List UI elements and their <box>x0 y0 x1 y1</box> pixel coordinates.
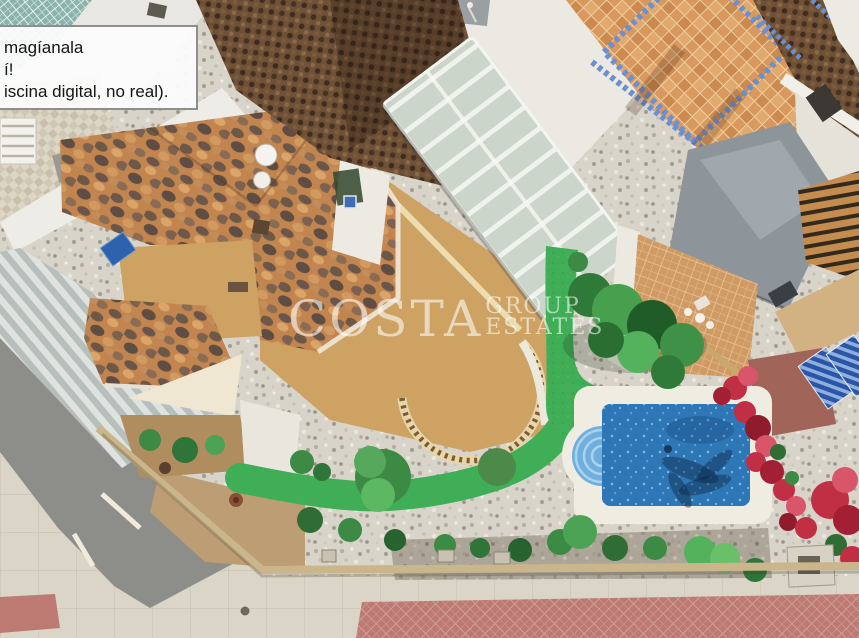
antenna-top <box>467 2 473 8</box>
pool-drain-dot <box>664 445 672 453</box>
blue-tile-accent <box>344 196 356 208</box>
terrace-furniture <box>252 219 270 236</box>
note-line-3: iscina digital, no real). <box>4 81 190 103</box>
note-line-2: í! <box>4 59 190 81</box>
satellite-dish-2 <box>254 172 271 189</box>
manhole-dot <box>241 607 250 616</box>
note-line-1: magíanala <box>4 37 190 59</box>
aerial-photo: COSTA GROUP ESTATES magíanala í! iscina … <box>0 0 859 638</box>
terrace-furniture-2 <box>228 282 248 292</box>
pot-center <box>233 497 239 503</box>
red-paving-corner <box>0 594 60 633</box>
photo-note-overlay: magíanala í! iscina digital, no real). <box>0 25 198 110</box>
satellite-dish <box>255 144 277 166</box>
water-depth-patch <box>666 416 734 444</box>
